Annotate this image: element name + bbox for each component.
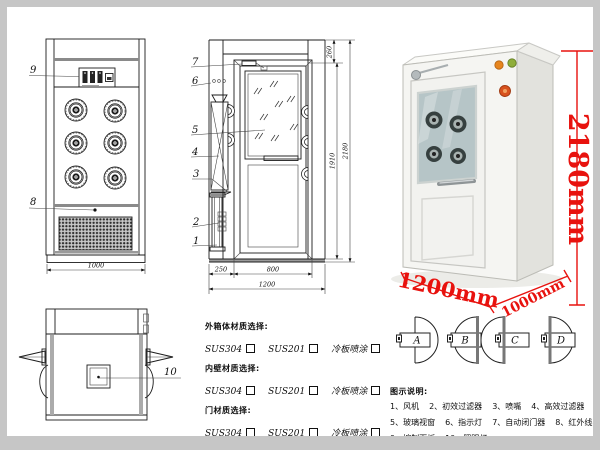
control-panel (79, 68, 115, 87)
door-handle (264, 156, 298, 161)
material-option-label: 冷板喷涂 (331, 429, 367, 439)
material-selection: 外箱体材质选择: SUS304 SUS201 冷板喷涂 内壁材质选择: SUS3… (205, 321, 383, 447)
top-band (54, 58, 139, 61)
front-width-dimension: 1000 (47, 262, 145, 275)
material-section-title: 内壁材质选择: (205, 363, 383, 374)
door-option-label: A (412, 336, 420, 347)
photo-dim-height: 2180mm (562, 113, 593, 245)
material-option-label: 冷板喷涂 (331, 345, 367, 355)
material-option-label: SUS304 (205, 429, 242, 439)
door-option-label: C (511, 336, 519, 347)
material-checkbox[interactable] (371, 344, 380, 353)
legend-item: 5、玻璃视窗 (390, 417, 435, 428)
svg-text:8: 8 (30, 197, 36, 208)
filter-column (210, 193, 226, 251)
material-option-label: SUS304 (205, 387, 242, 397)
front-view-drawing: 1000 9 8 (29, 39, 145, 274)
material-checkbox[interactable] (371, 386, 380, 395)
air-shower-spec-sheet: 1000 9 8 (0, 0, 600, 450)
legend-item: 3、喷嘴 (492, 401, 521, 412)
legend-item: 7、自动闭门器 (492, 417, 545, 428)
nozzle-grid (65, 99, 126, 189)
door-option-C: C (481, 316, 529, 364)
material-option-label: SUS201 (268, 429, 305, 439)
material-checkbox[interactable] (246, 428, 255, 437)
legend: 图示说明: 1、风机 2、初效过滤器 3、喷嘴 4、高效过滤器 5、玻璃视窗 6… (390, 386, 600, 449)
glass-window (248, 74, 298, 156)
side-wall-nozzles (302, 106, 309, 181)
section-bottom-dimensions: 250 800 1200 (209, 260, 325, 294)
svg-text:9: 9 (30, 65, 37, 76)
material-section-title: 外箱体材质选择: (205, 321, 383, 332)
svg-text:10: 10 (164, 367, 177, 378)
legend-item: 8、红外线感应器 (555, 417, 600, 428)
door-option-A: A (397, 317, 439, 363)
door-option-icons: A B C D (397, 316, 576, 364)
section-height-dimensions: 260 1910 2180 (308, 40, 355, 262)
return-air-grille (59, 217, 132, 250)
material-checkbox[interactable] (309, 386, 318, 395)
material-checkbox[interactable] (246, 386, 255, 395)
material-checkbox[interactable] (371, 428, 380, 437)
dim-800: 800 (267, 266, 279, 274)
indicator-lamps (213, 80, 226, 83)
legend-item: 9、控制面板 (390, 433, 435, 444)
dim-1000: 1000 (88, 262, 105, 270)
door-option-D: D (542, 316, 576, 364)
material-option-label: SUS304 (205, 345, 242, 355)
legend-item: 2、初效过滤器 (429, 401, 482, 412)
callout-3: 3 (193, 169, 199, 180)
material-checkbox[interactable] (309, 428, 318, 437)
door-swing-marks (19, 349, 173, 398)
material-checkbox[interactable] (246, 344, 255, 353)
top-view-drawing: 10 (19, 309, 181, 420)
cabinet-side-face (517, 51, 553, 281)
material-section-door: 门材质选择: SUS304 SUS201 冷板喷涂 (205, 405, 383, 440)
dim-260: 260 (326, 46, 334, 59)
material-section-title: 门材质选择: (205, 405, 383, 416)
legend-item: 10、照明灯 (445, 433, 487, 444)
door-option-label: D (556, 336, 565, 347)
door-option-label: B (460, 336, 468, 347)
dim-1910: 1910 (329, 153, 337, 170)
dim-2180: 2180 (342, 143, 350, 161)
legend-title: 图示说明: (390, 386, 600, 397)
material-checkbox[interactable] (309, 344, 318, 353)
section-view-drawing: 7 6 5 4 3 2 1 250 800 1200 (191, 40, 355, 294)
photo-door (411, 72, 485, 268)
door-closer (242, 61, 267, 70)
orange-button (495, 61, 503, 69)
legend-item: 1、风机 (390, 401, 419, 412)
legend-item: 4、高效过滤器 (531, 401, 584, 412)
callout-1: 1 (193, 236, 199, 247)
material-option-label: 冷板喷涂 (331, 387, 367, 397)
legend-item: 6、指示灯 (445, 417, 482, 428)
glass-hatching (254, 81, 298, 141)
material-section-inner-wall: 内壁材质选择: SUS304 SUS201 冷板喷涂 (205, 363, 383, 398)
green-button (508, 59, 516, 67)
dim-1200: 1200 (259, 281, 276, 289)
dim-250: 250 (214, 266, 227, 274)
material-option-label: SUS201 (268, 345, 305, 355)
callout-4: 4 (191, 147, 198, 158)
product-photo: 2180mm 1200mm 1000mm (391, 43, 593, 321)
material-section-outer-box: 外箱体材质选择: SUS304 SUS201 冷板喷涂 (205, 321, 383, 356)
door-option-B: B (448, 316, 482, 364)
door-panel (234, 60, 312, 259)
material-option-label: SUS201 (268, 387, 305, 397)
